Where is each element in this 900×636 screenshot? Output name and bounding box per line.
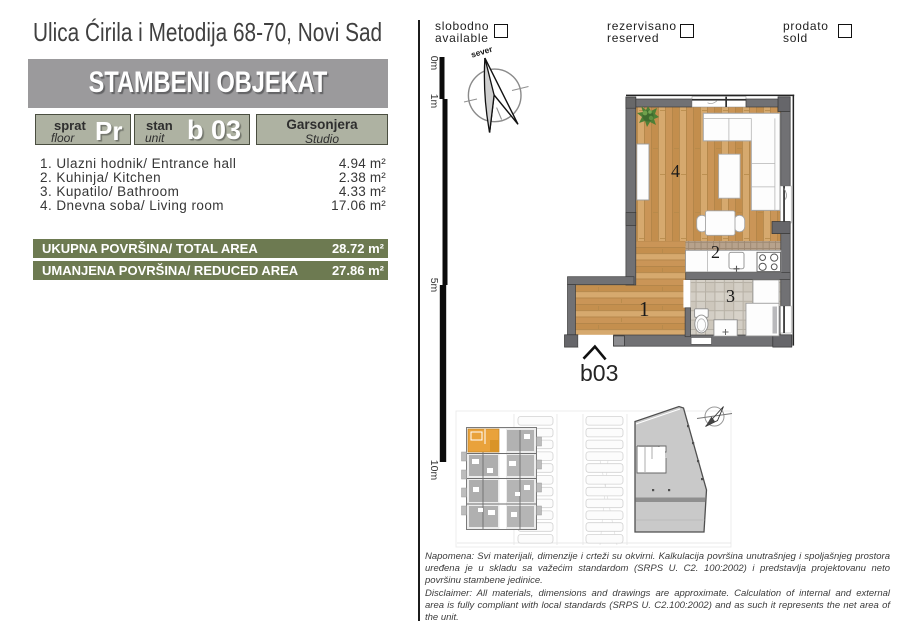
svg-text:1m: 1m (428, 94, 440, 109)
svg-text:10m: 10m (428, 460, 440, 481)
svg-text:3: 3 (726, 286, 735, 306)
svg-text:sever: sever (470, 44, 495, 60)
svg-text:0m: 0m (428, 56, 440, 71)
svg-text:b03: b03 (580, 360, 618, 386)
svg-text:4: 4 (671, 161, 680, 181)
svg-text:1: 1 (639, 297, 650, 321)
svg-text:5m: 5m (428, 278, 440, 293)
svg-text:2: 2 (711, 242, 720, 262)
